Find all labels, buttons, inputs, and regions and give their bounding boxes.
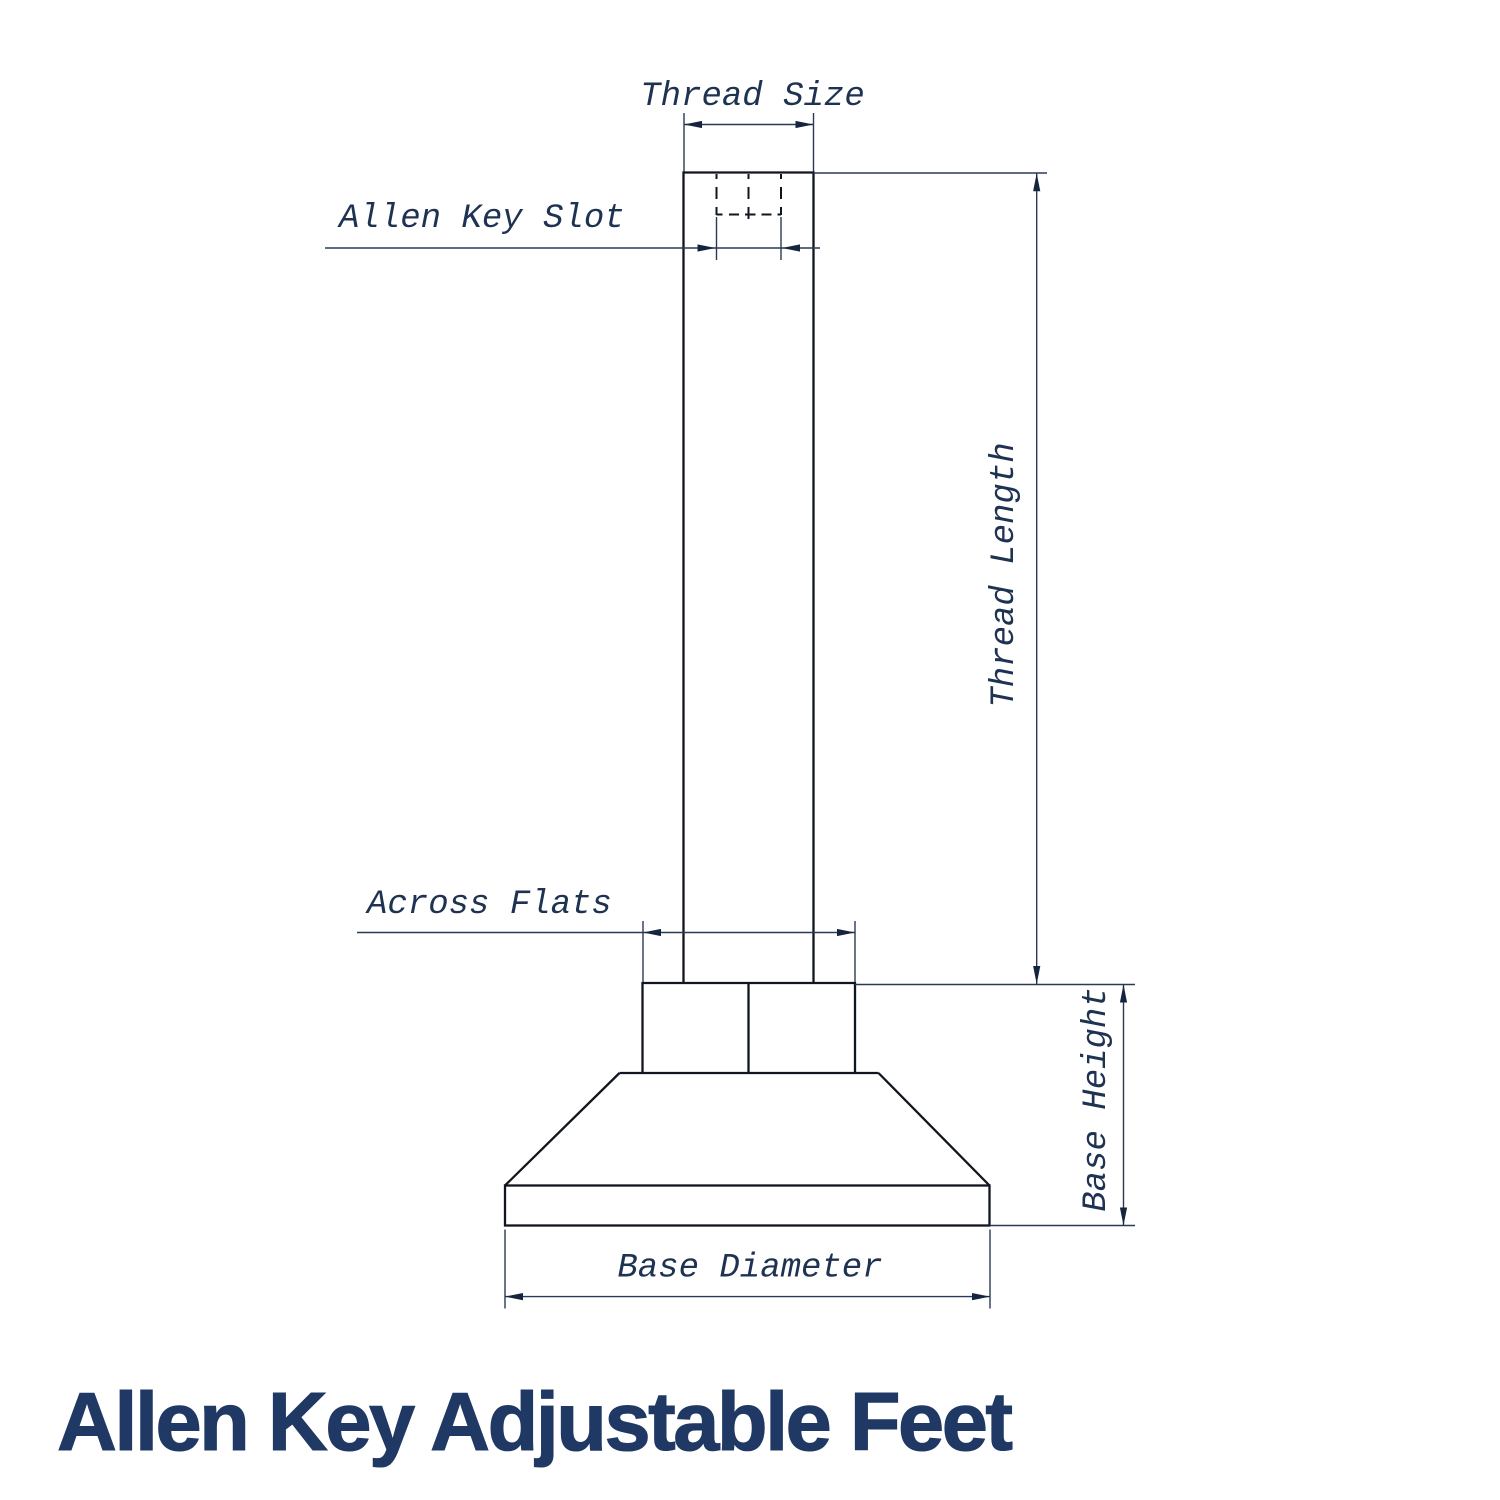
svg-text:Thread Size: Thread Size: [640, 78, 864, 116]
svg-text:Thread Length: Thread Length: [986, 442, 1024, 707]
svg-text:Allen Key Adjustable Feet: Allen Key Adjustable Feet: [57, 1375, 1013, 1468]
svg-text:Base Height: Base Height: [1078, 987, 1116, 1211]
svg-text:Across Flats: Across Flats: [365, 886, 612, 924]
svg-text:Allen Key Slot: Allen Key Slot: [337, 200, 625, 238]
svg-text:Base Diameter: Base Diameter: [617, 1250, 882, 1288]
